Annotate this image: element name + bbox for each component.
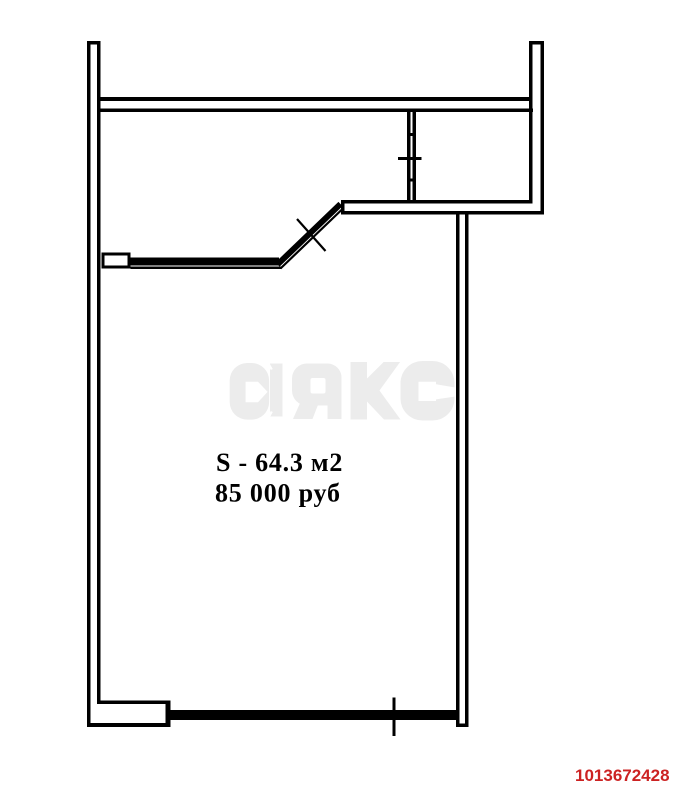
svg-text:85 000 руб: 85 000 руб: [215, 478, 341, 507]
svg-text:1013672428: 1013672428: [575, 766, 670, 785]
svg-text:S - 64.3 м2: S - 64.3 м2: [216, 448, 343, 477]
